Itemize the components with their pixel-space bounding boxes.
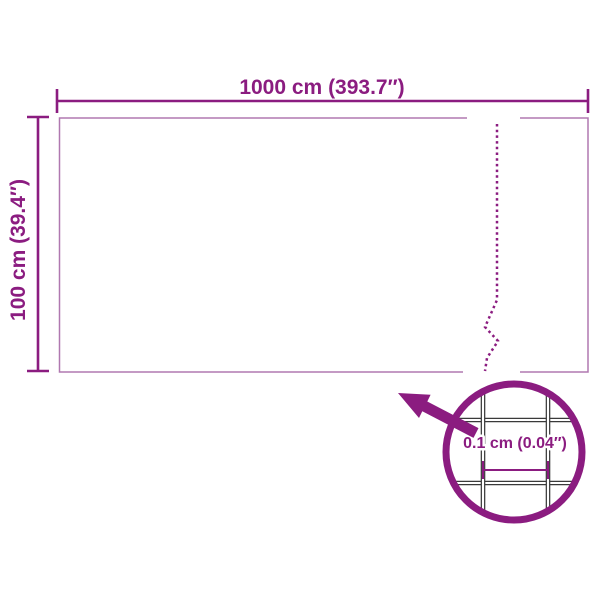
roll-outline	[60, 118, 589, 372]
roll-outline-left-part	[60, 118, 468, 372]
diagram-canvas: 1000 cm (393.7″) 100 cm (39.4″)	[0, 0, 600, 600]
magnifier-circle-icon	[446, 384, 582, 520]
height-dimension: 100 cm (39.4″)	[7, 117, 49, 371]
product-dimension-diagram: 1000 cm (393.7″) 100 cm (39.4″)	[0, 0, 600, 600]
height-dimension-label: 100 cm (39.4″)	[7, 179, 30, 321]
width-dimension-label: 1000 cm (393.7″)	[239, 76, 404, 99]
roll-outline-right-part	[520, 118, 588, 372]
tear-dashed-line	[485, 124, 498, 371]
mesh-size-label: 0.1 cm (0.04″)	[463, 435, 567, 452]
width-dimension: 1000 cm (393.7″)	[57, 76, 588, 113]
mesh-dimension	[483, 461, 548, 479]
zoom-detail: 0.1 cm (0.04″)	[446, 384, 582, 520]
